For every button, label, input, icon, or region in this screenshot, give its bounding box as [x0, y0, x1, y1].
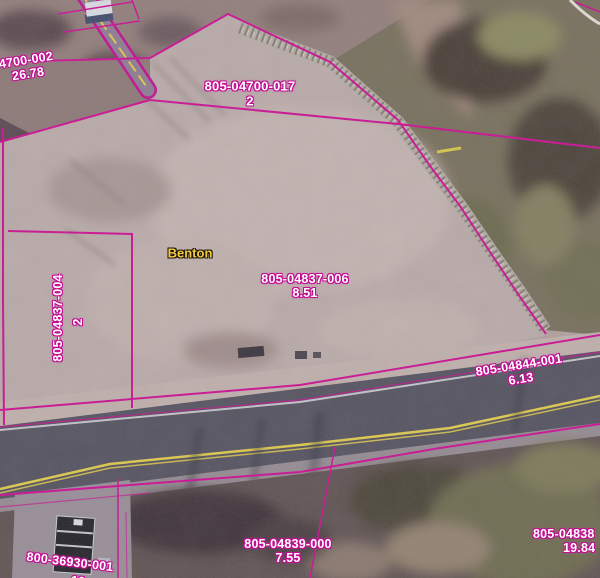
parcel-id: 805-04837-004 — [51, 274, 65, 361]
place-label-benton: Benton — [168, 246, 213, 261]
gis-map-canvas[interactable]: 4700-002 26.78 805-04700-017 2 Benton 80… — [0, 0, 600, 578]
parcel-label-805-04700-017: 805-04700-017 2 — [205, 79, 296, 108]
parcel-label-805-04838: 805-04838 19.84 — [533, 527, 595, 555]
parcel-id: 805-04839-000 — [244, 537, 331, 551]
parcel-lot: 2 — [71, 318, 85, 325]
parcel-area: 19.84 — [533, 541, 595, 555]
parcel-label-805-04837-006: 805-04837-006 8.51 — [261, 272, 348, 300]
parcel-area: 10 — [70, 573, 86, 578]
parcel-area-800-36930-001: 10 — [70, 573, 86, 578]
parcel-lot-805-04837-004: 2 — [71, 318, 85, 325]
parcel-id: 805-04838 — [533, 527, 595, 541]
parcel-id: 805-04700-017 — [205, 78, 296, 93]
parcel-label-805-04837-004: 805-04837-004 — [51, 274, 65, 361]
parcel-area: 8.51 — [261, 286, 348, 300]
parcel-area: 7.55 — [244, 551, 331, 565]
parcel-id: 805-04837-006 — [261, 272, 348, 286]
parcel-lot: 2 — [205, 94, 296, 109]
parcel-label-805-04839-000: 805-04839-000 7.55 — [244, 537, 331, 565]
